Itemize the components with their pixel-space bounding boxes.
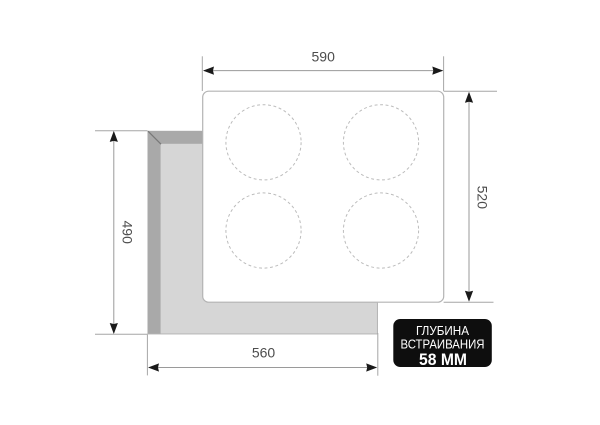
svg-text:520: 520 [474,186,490,210]
svg-text:560: 560 [252,345,276,361]
svg-text:58 ММ: 58 ММ [419,351,467,369]
svg-text:590: 590 [312,49,336,65]
svg-text:ГЛУБИНА: ГЛУБИНА [416,324,470,338]
svg-text:ВСТРАИВАНИЯ: ВСТРАИВАНИЯ [401,338,485,352]
svg-text:490: 490 [120,221,136,245]
